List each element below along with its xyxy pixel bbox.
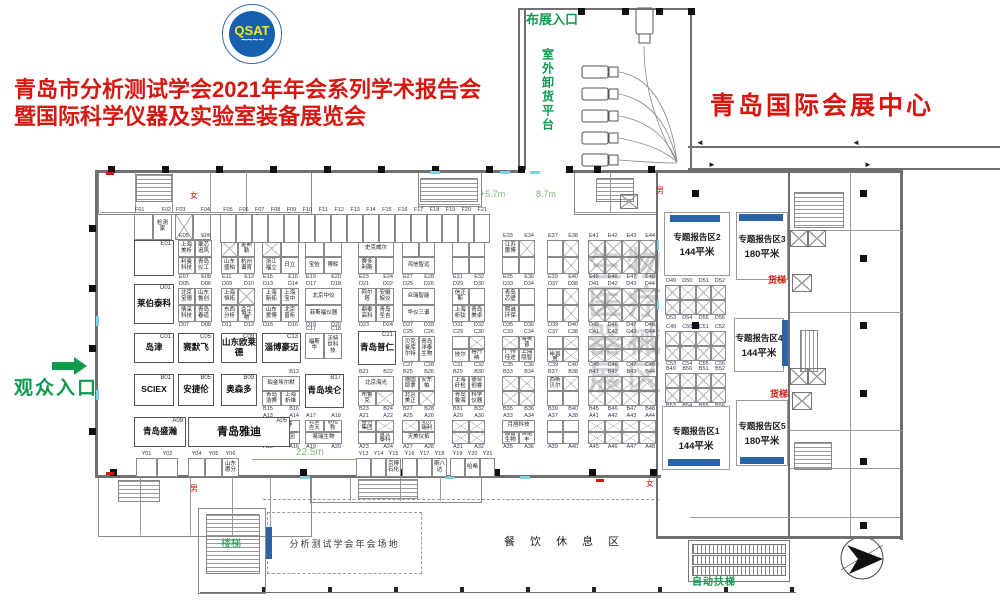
booth-id-label: C25: [403, 329, 413, 336]
booth-block: C49C50C51C52C53C54C55C56: [665, 324, 726, 368]
map-label: ◄: [852, 139, 860, 148]
exhibitor-name: 青岛盛瀚: [143, 427, 177, 437]
booth-cell: [680, 285, 695, 300]
booth-block: D21D22阿尔塔安徽皖仪鼎泰高科青岛圣吉D23D24: [358, 281, 394, 329]
booth-cell: [502, 336, 519, 349]
stage-bar: [670, 215, 720, 222]
booth-C05: C05赛默飞: [178, 333, 214, 363]
booth-id-label: D24: [383, 322, 393, 329]
pillar: [650, 469, 657, 476]
booth-block: D13D14上海新拓上海宝中山东爱博北京普析D15D16: [262, 281, 299, 329]
booth-cell: 安东帕: [419, 376, 436, 391]
booth-cell: 德合创睿: [469, 376, 486, 391]
elevator: [792, 392, 812, 410]
booth-id-label: E32: [474, 274, 484, 281]
booth-id-label: B38: [568, 369, 578, 376]
booth-cell: [711, 373, 726, 388]
booth-cell: [696, 388, 711, 403]
door-mark: [106, 472, 114, 475]
booth-B17: B17青岛埃仑: [305, 374, 344, 408]
wall: [518, 10, 520, 170]
booth-id-label: C32: [474, 362, 484, 369]
booth-id-label: E34: [524, 233, 534, 240]
booth-strip: Y13Y14Y15京博石化: [356, 451, 401, 477]
pillar: [648, 166, 655, 173]
booth-cell: 布鲁克: [358, 391, 376, 406]
booth-cell: 京博石化: [386, 458, 401, 477]
exhibitor-name: 青岛埃仑: [307, 386, 341, 396]
stairs: [136, 174, 172, 202]
booth-id-label: D28: [424, 322, 434, 329]
booth-id-label: E12: [244, 274, 254, 281]
booth-cell: 众瑞智能: [402, 288, 435, 305]
booth-id-label: A14: [289, 413, 299, 420]
booth-id-label: D34: [524, 281, 534, 288]
booth-cell: 上海恒拓: [221, 288, 238, 305]
booth-id-label: C21: [382, 332, 393, 338]
booth-id-label: E08: [201, 274, 211, 281]
map-label: 22.5m: [296, 447, 324, 458]
booth-block: A21A22睿科集团普立泰科A23A24: [358, 413, 394, 451]
booth-cell: 山东惠分: [222, 458, 239, 477]
booth-id-label: F06: [236, 207, 252, 214]
booth-cell: [547, 305, 563, 322]
pillar: [300, 469, 307, 476]
report-zone-size: 180平米: [745, 433, 780, 447]
exhibitor-name: 安捷伦: [183, 385, 209, 395]
map-label: 男: [656, 187, 664, 196]
booth-cell: 贝克曼库尔特: [402, 336, 419, 362]
booth-cell: 上海隐智: [519, 349, 536, 362]
booth-cell: [376, 420, 394, 432]
wall: [572, 170, 902, 173]
booth-id-label: E35: [503, 274, 513, 281]
wall: [518, 8, 692, 10]
pillar: [486, 166, 493, 173]
exhibitor-name: 淄博豪迈: [264, 343, 298, 353]
booth-cell: [411, 214, 427, 243]
booth-id-label: C36: [524, 362, 534, 369]
report-zone-size: 144平米: [679, 438, 714, 452]
booth-block: F01F02检测家: [134, 207, 172, 240]
booth-id-label: B23: [359, 406, 369, 413]
map-label: 货梯: [770, 389, 788, 399]
booth-A09: A09青岛盛瀚: [134, 417, 186, 447]
booth-cell: [502, 391, 519, 406]
pillar: [89, 345, 96, 352]
booth-block: C29C30技尔格丹纳C31C32: [452, 329, 485, 369]
booth-id-label: A27: [403, 444, 413, 451]
booth-cell: [238, 288, 255, 305]
booth-id-label: F19: [442, 207, 458, 214]
booth-id-label: D33: [503, 281, 513, 288]
booth-id-label: B24: [383, 406, 393, 413]
booth-id-label: D13: [263, 281, 273, 288]
booth-cell: [563, 257, 579, 274]
map-label: 布展入口: [526, 13, 578, 28]
booth-block: B25B26德国耶拿安东帕北京美正B27B28: [402, 369, 435, 413]
booth-block: C37C38苏州毕恩思C39C40: [547, 329, 579, 369]
booth-id-label: A38: [568, 413, 578, 420]
wall-line: [210, 172, 211, 212]
booth-id-label: C30: [474, 329, 484, 336]
booth-id-label: Y20: [465, 451, 480, 458]
booth-block: A33A34月旭科技融智生物恒诺丰A35A36: [502, 413, 535, 451]
booth-id-label: B15: [263, 406, 273, 413]
booth-cell: 北分瑞利: [419, 420, 436, 432]
wall: [688, 146, 1000, 148]
booth-id-label: Y06: [222, 451, 239, 458]
map-label: ►: [864, 161, 872, 170]
booth-cell: 北京吉天: [305, 420, 324, 432]
booth-id-label: D56: [715, 315, 725, 322]
elevator: [808, 230, 826, 247]
wall-line: [790, 430, 902, 431]
booth-id-label: F03: [176, 207, 185, 214]
exhibitor-name: SCIEX: [141, 385, 167, 395]
booth-cell: [547, 288, 563, 305]
booth-id-label: A39: [548, 444, 558, 451]
booth-cell: 技尔: [452, 349, 469, 362]
booth-id-label: D31: [453, 322, 463, 329]
booth-id-label: A24: [383, 444, 393, 451]
map-label: 女: [190, 192, 198, 201]
booth-C01: C01岛津: [134, 333, 174, 363]
booth-id-label: E23: [359, 274, 369, 281]
pillar: [860, 190, 867, 197]
booth-cell: [519, 240, 536, 257]
booth-id-label: A34: [524, 413, 534, 420]
booth-id-label: C28: [424, 362, 434, 369]
booth-cell: 山东爱博: [262, 305, 281, 322]
booth-id-label: E42: [608, 233, 618, 240]
wall-line: [574, 212, 656, 213]
booth-id-label: B30: [474, 369, 484, 376]
booth-id-label: D17: [306, 281, 316, 288]
booth-cell: [376, 391, 394, 406]
booth-cell: 信正斯: [452, 288, 469, 305]
booth-id-label: A25: [403, 413, 413, 420]
booth-id-label: A30: [474, 413, 484, 420]
booth-cell: [605, 420, 622, 432]
booth-id-label: B09: [243, 375, 254, 381]
booth-id-label: B31: [453, 406, 463, 413]
booth-cell: [696, 285, 711, 300]
booth-block: C33C34海奥普广州佳途上海隐智C35C36: [502, 329, 535, 369]
report-zone-size: 144平米: [680, 244, 715, 258]
stairs: [794, 192, 844, 228]
booth-cell: 北京美正: [402, 391, 419, 406]
door-mark: [500, 171, 510, 174]
booth-id-label: C49: [666, 324, 676, 331]
booth-cell: [547, 257, 563, 274]
booth-id-label: C26: [424, 329, 434, 336]
booth-cell: 上海纤检: [452, 376, 469, 391]
booth-block: A41A42A43A44A45A46A47A48: [588, 413, 656, 451]
booth-id-label: D40: [568, 322, 578, 329]
booth-cell: [395, 214, 411, 243]
booth-id-label: D29: [453, 281, 463, 288]
wall: [95, 170, 518, 173]
wall: [656, 536, 903, 539]
booth-block: C17C18福斯华沃特世科技: [305, 326, 342, 359]
booth-cell: 哈希: [465, 458, 480, 477]
map-label: 货梯: [768, 275, 786, 285]
booth-id-label: B28: [424, 406, 434, 413]
stage-bar: [266, 527, 272, 559]
booth-cell: [547, 432, 563, 444]
booth-id-label: A23: [359, 444, 369, 451]
exhibitor-name: 山东欧莱德: [222, 338, 256, 358]
booth-cell: 阿尔塔: [358, 288, 376, 305]
booth-id-label: A09: [172, 418, 183, 424]
booth-id-label: B27: [403, 406, 413, 413]
wall-line: [172, 172, 173, 212]
booth-cell: [547, 420, 563, 432]
booth-cell: 菲斯福仪器: [305, 305, 342, 322]
booth-cell: [711, 346, 726, 361]
booth-cell: 熙诚环保: [502, 305, 519, 322]
booth-cell: 北京中仪: [305, 288, 342, 305]
booth-id-label: F14: [363, 207, 379, 214]
booth-strip: Y01Y02: [136, 451, 178, 477]
stage-bar: [739, 214, 783, 221]
booth-cell: 天美仪拓: [402, 432, 435, 444]
booth-cell: [442, 214, 458, 243]
wall: [656, 477, 658, 537]
booth-id-label: A28: [424, 444, 434, 451]
booth-id-label: B16: [289, 406, 299, 413]
booth-cell: [188, 458, 205, 477]
booth-block: D29D30信正斯上海析钛青岛美卓D31D32: [452, 281, 485, 329]
door-mark: [300, 476, 310, 479]
annual-meeting-area: 分析测试学会年会场地: [267, 512, 422, 574]
elevator: [790, 368, 808, 385]
booth-cell: [469, 420, 486, 432]
booth-block: B49B50B51B52B53B54B55B56: [665, 366, 726, 410]
booth-id-label: C17: [306, 326, 316, 333]
booth-cell: 山东盛柏: [221, 257, 238, 274]
booth-cell: 科学仪器: [469, 391, 486, 406]
booth-id-label: C31: [453, 362, 463, 369]
booth-id-label: Y13: [356, 451, 371, 458]
booth-id-label: C39: [548, 362, 558, 369]
booth-id-label: B47: [626, 406, 636, 413]
report-zone-name: 专题报告区3: [738, 233, 785, 245]
booth-id-label: D14: [288, 281, 298, 288]
booth-cell: [157, 458, 178, 477]
booth-E01: E01: [134, 240, 174, 276]
booth-id-label: D23: [359, 322, 369, 329]
booth-cell: 安徽皖仪: [376, 288, 394, 305]
booth-block: B13珀金埃尔默青岛浩赛上海析维B15B16: [262, 369, 300, 413]
floor-plan-page: QSAT ∼∼∼∼ 青岛市分析测试学会2021年年会系列学术报告会暨国际科学仪器…: [0, 0, 1000, 616]
stage-bar: [782, 320, 788, 366]
pillar: [216, 166, 223, 173]
booth-cell: 日立: [281, 257, 300, 274]
booth-cell: [331, 214, 347, 243]
booth-cell: [519, 391, 536, 406]
booth-D01: D01莱伯泰科: [134, 284, 174, 324]
pillar: [860, 522, 867, 529]
booth-cell: 北京宝德: [178, 288, 195, 305]
booth-cell: [402, 458, 417, 477]
booth-cell: [452, 336, 469, 349]
booth-cell: [665, 373, 680, 388]
booth-cell: [563, 432, 579, 444]
booth-cell: 上海宝中: [281, 288, 300, 305]
booth-id-label: Y05: [205, 451, 222, 458]
booth-cell: 依拉勃: [324, 420, 343, 432]
booth-id-label: D36: [524, 322, 534, 329]
booth-id-label: D06: [201, 281, 211, 288]
booth-block: D49D50D51D52D53D54D55D56: [665, 278, 726, 322]
booth-cell: [469, 288, 486, 305]
booth-id-label: F08: [268, 207, 284, 214]
booth-cell: [665, 388, 680, 403]
door-mark: [106, 172, 114, 175]
map-label: 室外卸货平台: [540, 48, 553, 132]
booth-cell: 利曼科技: [178, 257, 195, 274]
stairs: [358, 479, 418, 499]
booth-cell: 青岛浩赛: [262, 391, 281, 406]
booth-strip: Y16Y17Y18斯八达: [402, 451, 447, 477]
booth-cell: 青岛美卓: [469, 305, 486, 322]
booth-cell: [519, 376, 536, 391]
elevator: [808, 368, 826, 385]
booth-cell: [519, 288, 536, 305]
booth-id-label: C09: [243, 334, 254, 340]
booth-cell: [252, 214, 268, 243]
booth-cell: [711, 388, 726, 403]
map-label: 楼梯: [221, 539, 241, 550]
booth-cell: 鼎泰高科: [358, 305, 376, 322]
booth-id-label: Y19: [450, 451, 465, 458]
booth-cell: [134, 214, 153, 240]
pillar: [518, 166, 525, 173]
booth-cell: [696, 331, 711, 346]
door-mark: [596, 479, 604, 482]
elevator: [790, 230, 808, 247]
booth-id-label: A26: [424, 413, 434, 420]
booth-cell: 青岛圣吉: [376, 305, 394, 322]
booth-cell: [419, 391, 436, 406]
pillar: [692, 190, 699, 197]
booth-cell: [236, 214, 252, 243]
booth-cell: [680, 346, 695, 361]
booth-id-label: Y04: [188, 451, 205, 458]
booth-cell: [284, 214, 300, 243]
booth-id-label: D08: [201, 322, 211, 329]
booth-cell: [665, 346, 680, 361]
booth-cell: [363, 214, 379, 243]
report-zone-size: 144平米: [742, 345, 777, 359]
booth-id-label: F17: [411, 207, 427, 214]
booth-id-label: F20: [458, 207, 474, 214]
booth-block: E05E06上海美析聚芯追风利曼科技青岛仪工E07E08: [178, 233, 212, 281]
booth-cell: [458, 214, 474, 243]
booth-id-label: A41: [589, 413, 599, 420]
booth-cell: 广州佳途: [502, 349, 519, 362]
booth-id-label: D05: [179, 281, 189, 288]
booth-id-label: B29: [453, 369, 463, 376]
booth-id-label: Y14: [371, 451, 386, 458]
booth-id-label: D49: [666, 278, 676, 285]
booth-id-label: E33: [503, 233, 513, 240]
wall-line: [850, 172, 851, 536]
booth-block: B29B30上海纤检德合创睿青岛鲁海科学仪器B31B32: [452, 369, 485, 413]
booth-id-label: D12: [244, 322, 254, 329]
booth-cell: [639, 420, 656, 432]
booth-cell: [519, 257, 536, 274]
booth-cell: [622, 420, 639, 432]
booth-cell: [268, 214, 284, 243]
booth-id-label: A42: [608, 413, 618, 420]
booth-id-label: B22: [383, 369, 393, 376]
stairs: [800, 330, 818, 372]
booth-id-label: D53: [666, 315, 676, 322]
pillar: [324, 166, 331, 173]
stairs: [420, 178, 478, 202]
booth-id-label: D11: [222, 322, 232, 329]
booth-id-label: A36: [524, 444, 534, 451]
booth-id-label: F05: [220, 207, 236, 214]
booth-block: D37D38D39D40: [547, 281, 579, 329]
booth-block: D05D06北京宝德山东鲁创情采科技青岛春道D07D08: [178, 281, 212, 329]
booth-id-label: D27: [403, 322, 413, 329]
booth-id-label: A45: [589, 444, 599, 451]
booth-cell: [474, 214, 490, 243]
booth-id-label: D50: [682, 278, 692, 285]
booth-id-label: E15: [263, 274, 273, 281]
booth-id-label: B40: [568, 406, 578, 413]
map-label: ►: [708, 161, 716, 170]
booth-cell: [696, 346, 711, 361]
booth-id-label: E19: [306, 274, 316, 281]
booth-cell: 检测家: [153, 214, 172, 240]
booth-cell: 情采科技: [178, 305, 195, 322]
booth-id-label: Y02: [157, 451, 178, 458]
hall-watermark: 生物 医疗 器械 展区: [588, 246, 666, 398]
booth-cell: 山东鲁创: [195, 288, 212, 305]
booth-id-label: E28: [424, 274, 434, 281]
booth-id-label: B26: [424, 369, 434, 376]
booth-id-label: D07: [179, 322, 189, 329]
booth-id-label: B45: [589, 406, 599, 413]
pillar: [578, 8, 585, 15]
door-mark: [530, 171, 540, 174]
map-label: 8.7m: [536, 189, 556, 199]
booth-id-label: E39: [548, 274, 558, 281]
booth-id-label: D10: [244, 281, 254, 288]
booth-cell: [452, 432, 469, 444]
booth-id-label: Y17: [417, 451, 432, 458]
booth-block: A17A18北京吉天依拉勃易瑞生物A19A20: [305, 413, 342, 451]
booth-cell: [563, 336, 579, 349]
booth-id-label: E41: [589, 233, 599, 240]
report-zone-name: 专题报告区5: [738, 420, 785, 432]
booth-id-label: D55: [699, 315, 709, 322]
booth-id-label: F12: [331, 207, 347, 214]
booth-id-label: F09: [284, 207, 300, 214]
booth-cell: [547, 240, 563, 257]
booth-id-label: E27: [403, 274, 413, 281]
booth-cell: 江苏蕾博: [502, 240, 519, 257]
wall: [524, 10, 526, 170]
booth-cell: 德国耶拿: [402, 376, 419, 391]
booth-id-label: D54: [682, 315, 692, 322]
booth-id-label: C18: [331, 326, 341, 333]
